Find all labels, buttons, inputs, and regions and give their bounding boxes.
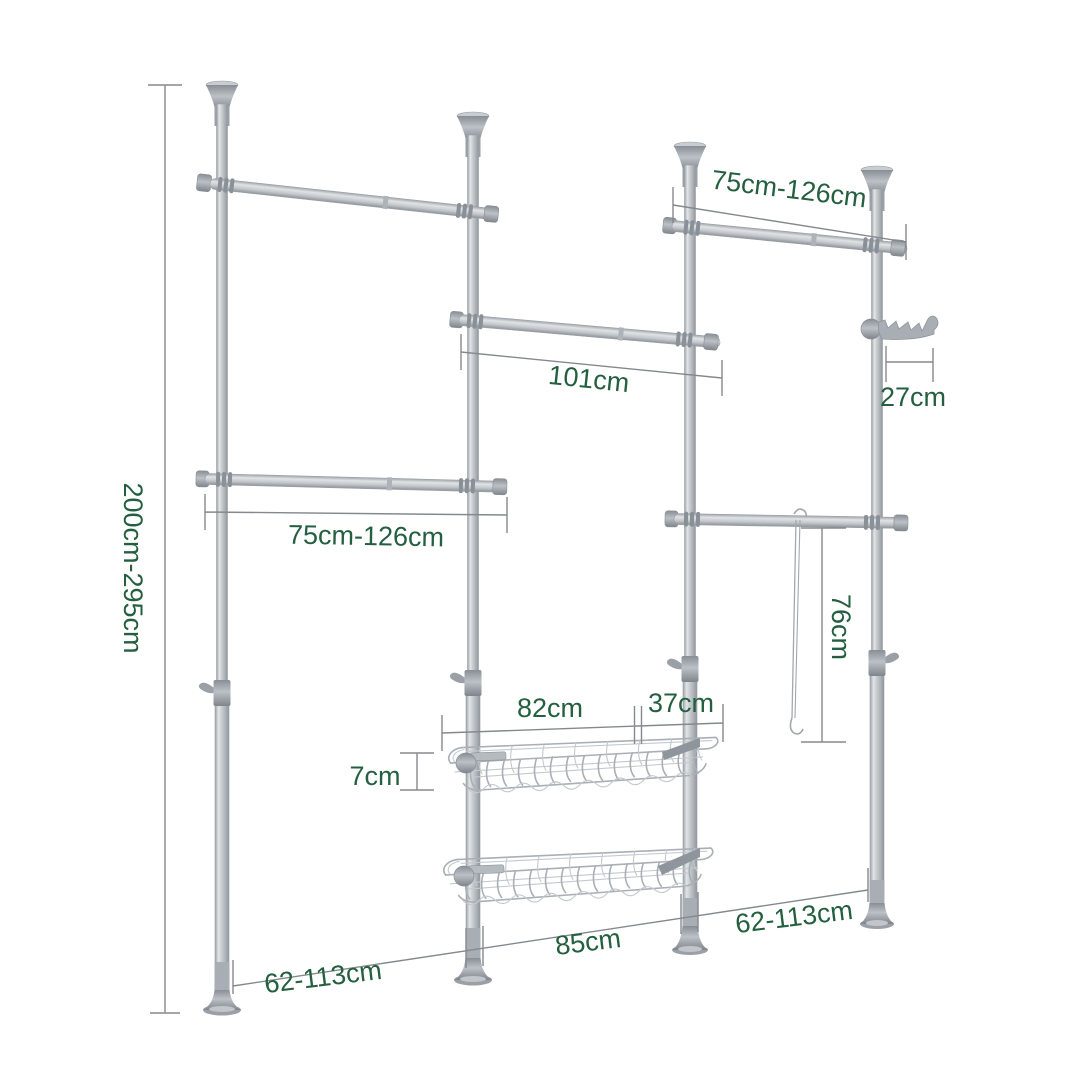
foot-top bbox=[678, 946, 702, 952]
basket-knob-lower bbox=[454, 866, 474, 886]
connector-ring bbox=[222, 472, 226, 487]
foot-sleeve bbox=[215, 962, 230, 992]
hanging-strap bbox=[790, 509, 806, 734]
clamp-lever bbox=[450, 673, 465, 684]
wire-basket-lower bbox=[443, 848, 714, 906]
telescope-seam bbox=[387, 477, 392, 490]
label-left-rail: 75cm-126cm bbox=[288, 520, 445, 553]
hook-rack-mount bbox=[861, 319, 881, 339]
foot-top bbox=[209, 1006, 235, 1012]
pole-lower-tube bbox=[870, 658, 884, 907]
connector-ring bbox=[228, 472, 232, 487]
label-middle-rail: 101cm bbox=[547, 360, 631, 398]
diagram-canvas: 200cm-295cm 75cm-126cm 101cm 75cm-126cm … bbox=[0, 0, 1080, 1080]
dim-hook-rack bbox=[886, 346, 933, 382]
rail-end-knob bbox=[483, 205, 499, 222]
dim-overall-height bbox=[148, 85, 182, 1013]
height-clamp bbox=[869, 650, 886, 676]
clamp-lever bbox=[199, 683, 214, 694]
pole-2 bbox=[450, 112, 492, 986]
foot-sleeve bbox=[466, 928, 481, 958]
label-basket-offset: 37cm bbox=[648, 688, 714, 718]
pole-3 bbox=[667, 142, 708, 955]
connector-ring bbox=[216, 472, 220, 487]
label-basket-width: 82cm bbox=[517, 693, 583, 723]
connector-ring bbox=[870, 515, 874, 530]
connector-ring bbox=[876, 515, 880, 530]
connector-ring bbox=[471, 478, 475, 493]
height-clamp bbox=[682, 656, 699, 682]
clamp-lever bbox=[884, 653, 899, 664]
foot-sleeve bbox=[683, 898, 698, 926]
label-top-right-rail: 75cm-126cm bbox=[710, 165, 869, 214]
rail-middle bbox=[449, 311, 720, 351]
label-floor-middle: 85cm bbox=[553, 923, 622, 961]
height-clamp bbox=[465, 670, 482, 696]
connector-ring bbox=[696, 512, 700, 527]
foot-sleeve bbox=[870, 880, 885, 907]
label-overall-height: 200cm-295cm bbox=[118, 482, 148, 653]
pole-1 bbox=[199, 81, 241, 1016]
rail-end-knob bbox=[894, 515, 908, 531]
hook-rack bbox=[861, 316, 938, 339]
pole-4 bbox=[860, 166, 899, 929]
connector-ring bbox=[864, 515, 868, 530]
connector-ring bbox=[690, 512, 694, 527]
clamp-lever bbox=[667, 659, 682, 670]
rail-top-left bbox=[196, 174, 499, 224]
pole-upper-tube bbox=[872, 189, 883, 658]
hook-rack-arm bbox=[878, 316, 938, 339]
label-floor-left: 62-113cm bbox=[263, 955, 384, 999]
pole-upper-tube bbox=[685, 165, 696, 664]
rail-tube bbox=[459, 314, 721, 348]
rail-tube bbox=[209, 178, 497, 220]
label-basket-depth: 7cm bbox=[349, 761, 400, 791]
label-floor-right: 62-113cm bbox=[734, 895, 855, 939]
dim-basket-depth bbox=[400, 753, 434, 790]
rail-end-knob bbox=[196, 174, 212, 192]
connector-ring bbox=[459, 478, 463, 493]
basket-knob-upper bbox=[456, 753, 476, 773]
foot-top bbox=[866, 920, 888, 926]
label-hook-rack: 27cm bbox=[880, 382, 946, 412]
dimension-lines bbox=[148, 85, 933, 1013]
rail-end-knob bbox=[703, 333, 718, 350]
rail-end-knob bbox=[493, 478, 507, 494]
connector-ring bbox=[684, 512, 688, 527]
strap-bottom-hook bbox=[790, 718, 803, 734]
pole-lower-tube bbox=[215, 690, 229, 992]
height-clamp bbox=[214, 680, 231, 706]
connector-ring bbox=[465, 478, 469, 493]
label-strap: 76cm bbox=[826, 594, 856, 660]
product-diagram: 200cm-295cm 75cm-126cm 101cm 75cm-126cm … bbox=[0, 0, 1080, 1080]
pole-lower-tube bbox=[466, 676, 480, 958]
foot-top bbox=[460, 976, 486, 982]
rail-mid-left bbox=[196, 471, 507, 495]
